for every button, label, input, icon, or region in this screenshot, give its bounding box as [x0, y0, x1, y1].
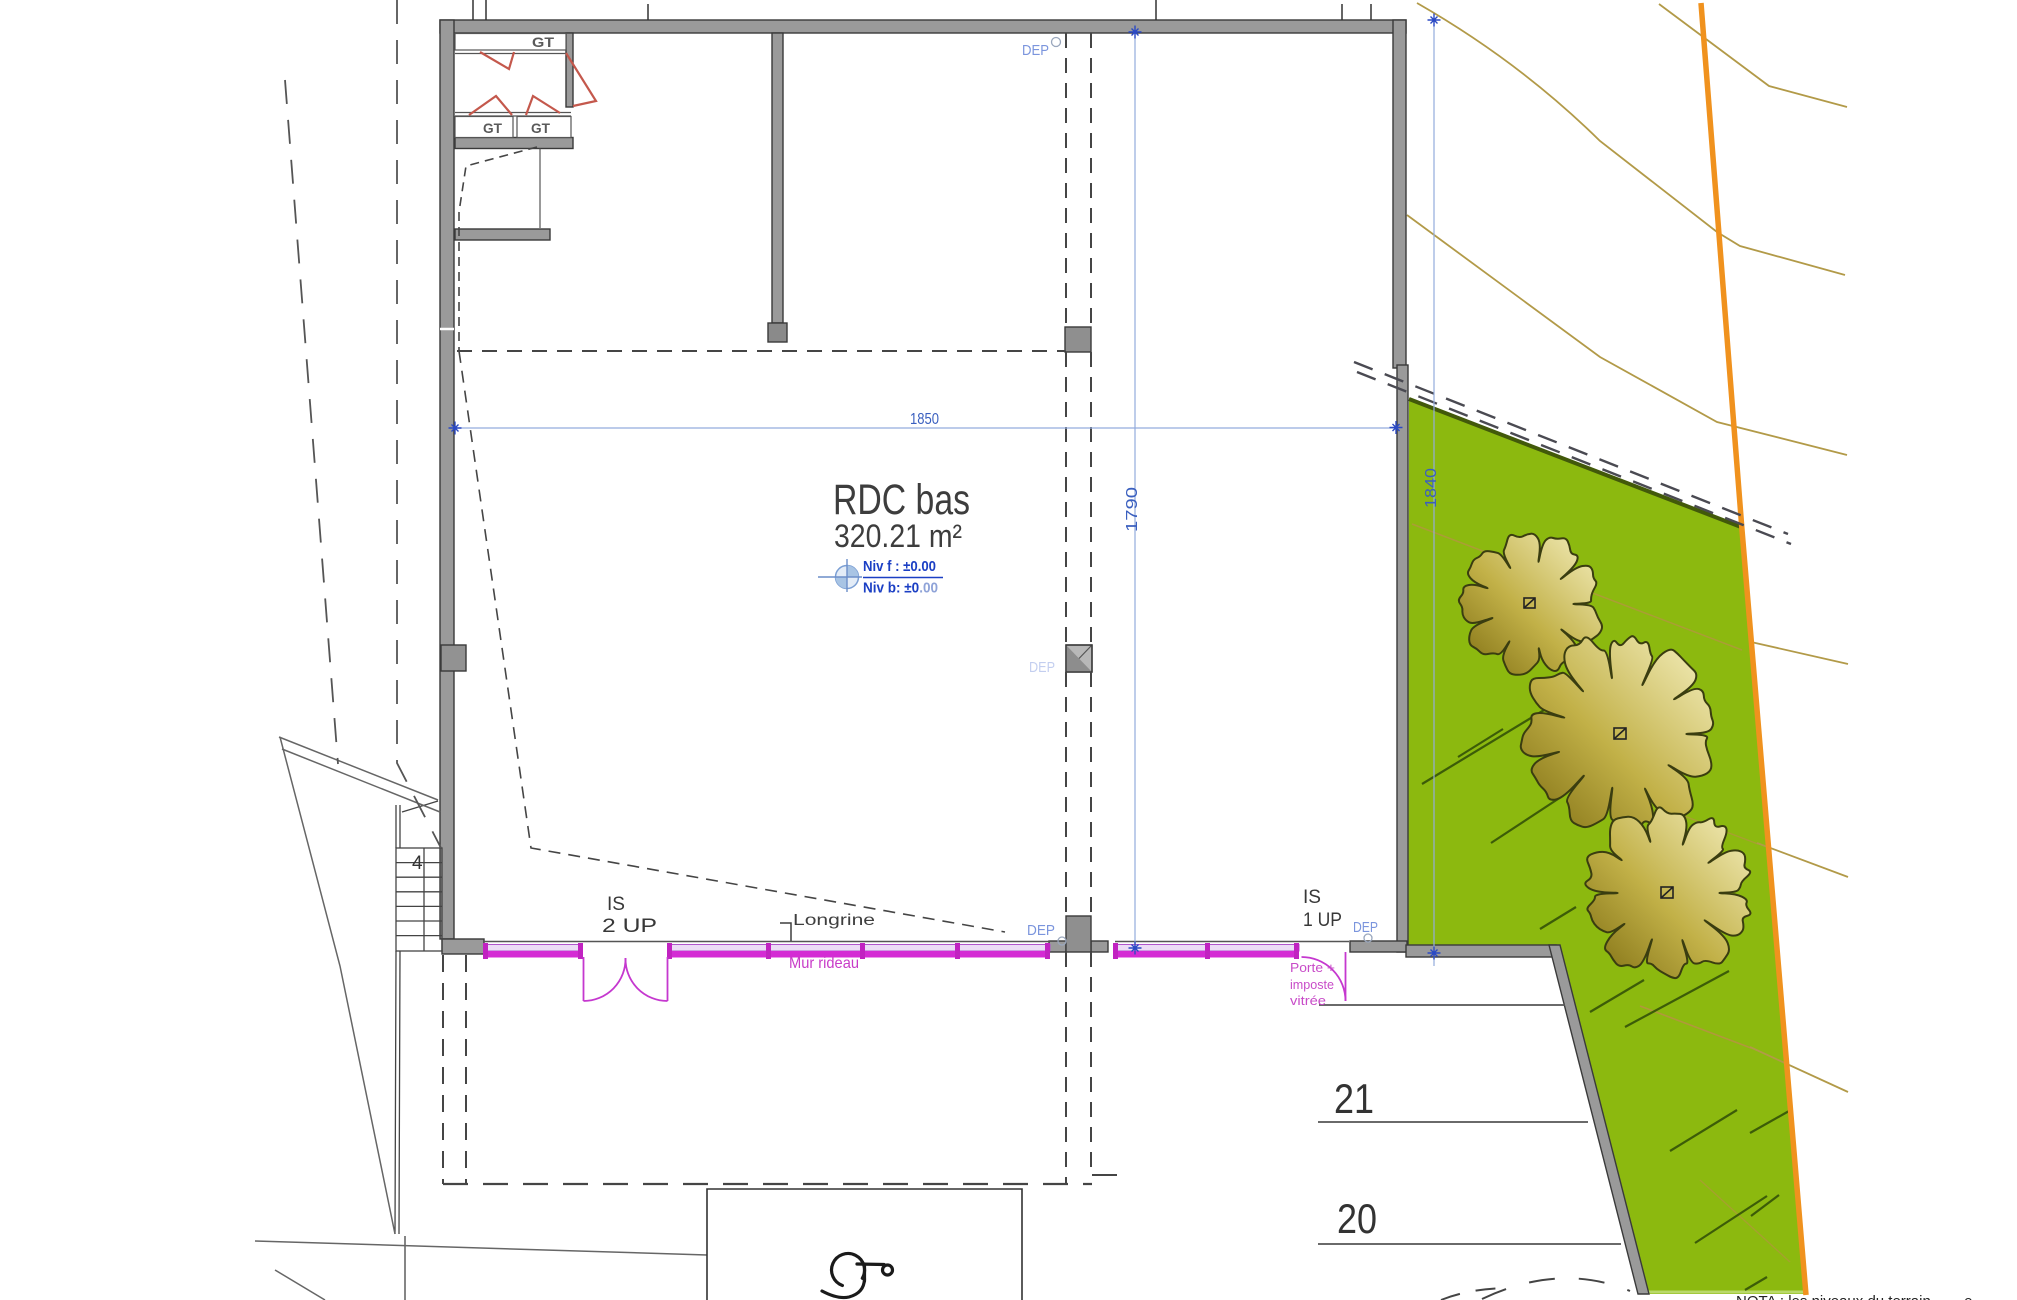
svg-text:GT: GT — [532, 35, 555, 50]
svg-text:DEP: DEP — [1027, 922, 1055, 939]
svg-text:IS: IS — [1303, 887, 1321, 908]
svg-text:Mur rideau: Mur rideau — [789, 955, 859, 972]
svg-text:DEP: DEP — [1353, 919, 1378, 936]
svg-text:imposte: imposte — [1290, 977, 1334, 992]
svg-text:Longrine: Longrine — [793, 912, 875, 929]
svg-text:Niv f : ±0.00: Niv f : ±0.00 — [863, 559, 936, 575]
svg-text:NOTA : les niveaux du terrai: NOTA : les niveaux du terrain ...... e — [1736, 1293, 1973, 1300]
svg-text:1 UP: 1 UP — [1303, 910, 1342, 931]
svg-text:4: 4 — [412, 853, 423, 874]
svg-text:DEP: DEP — [1029, 659, 1055, 676]
svg-text:20: 20 — [1337, 1195, 1377, 1242]
svg-text:2 UP: 2 UP — [602, 916, 657, 937]
svg-text:320.21 m²: 320.21 m² — [834, 518, 962, 554]
svg-text:Niv b: ±0.00: Niv b: ±0.00 — [863, 581, 938, 597]
svg-text:IS: IS — [607, 894, 625, 915]
svg-text:vitrée: vitrée — [1290, 993, 1326, 1008]
svg-text:GT: GT — [531, 121, 551, 136]
svg-text:1850: 1850 — [910, 411, 939, 428]
svg-text:1840: 1840 — [1423, 468, 1440, 508]
svg-text:RDC bas: RDC bas — [833, 476, 970, 524]
svg-text:1790: 1790 — [1124, 487, 1141, 532]
svg-text:GT: GT — [483, 121, 503, 136]
svg-text:Porte +: Porte + — [1290, 960, 1335, 975]
svg-text:21: 21 — [1334, 1075, 1374, 1122]
svg-text:DEP: DEP — [1022, 42, 1049, 59]
